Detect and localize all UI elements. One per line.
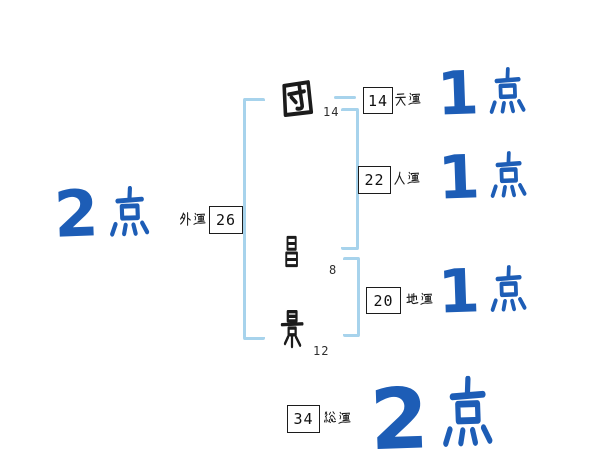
name-char-kei	[278, 310, 306, 352]
name-fortune-diagram: 14 8 12 14 22 20 26 34 1	[0, 0, 600, 470]
kanji-jin-icon	[393, 171, 406, 186]
souun-value-box: 34	[287, 405, 320, 433]
kanji-un-icon	[193, 212, 206, 227]
tenun-value-box: 14	[363, 87, 393, 114]
jinun-value: 22	[364, 171, 384, 189]
kanji-ten-icon	[394, 92, 407, 107]
bracket-chiun	[343, 257, 360, 337]
souun-score-digit: 2	[369, 386, 428, 453]
kanji-point-icon	[485, 66, 529, 117]
bracket-tenun-dash	[334, 96, 356, 99]
kanji-point-icon	[486, 150, 530, 201]
kanji-chi-icon	[406, 292, 419, 307]
kanji-un-icon	[420, 292, 433, 307]
chiun-value-box: 20	[366, 287, 401, 314]
tenun-value: 14	[368, 92, 388, 110]
souun-score: 2	[369, 384, 498, 455]
kanji-gai-icon	[179, 212, 192, 227]
kanji-point-icon	[486, 264, 530, 315]
name-char-sho	[281, 235, 302, 269]
tenun-score: 1	[436, 68, 528, 119]
stroke-count-dan: 14	[323, 105, 339, 119]
kanji-point-icon	[437, 375, 498, 453]
chiun-score: 1	[437, 266, 529, 317]
gaiun-score-digit: 2	[53, 190, 97, 241]
jinun-score-digit: 1	[437, 154, 478, 202]
kanji-un-icon	[408, 92, 421, 107]
gaiun-value-box: 26	[209, 206, 243, 234]
jinun-value-box: 22	[358, 166, 391, 194]
jinun-label	[393, 171, 420, 186]
souun-value: 34	[293, 410, 313, 428]
kanji-sou-icon	[324, 411, 337, 426]
gaiun-label	[179, 212, 206, 227]
stroke-count-sho: 8	[329, 263, 337, 277]
kanji-un-icon	[338, 411, 351, 426]
jinun-score: 1	[437, 152, 529, 203]
kanji-point-icon	[105, 185, 153, 241]
chiun-score-digit: 1	[437, 268, 478, 316]
bracket-gaiun	[243, 98, 265, 340]
kanji-un-icon	[407, 171, 420, 186]
bracket-jinun	[341, 108, 359, 250]
name-char-dan	[278, 78, 317, 120]
chiun-label	[406, 292, 433, 307]
tenun-label	[394, 92, 421, 107]
souun-label	[324, 411, 351, 426]
gaiun-value: 26	[216, 211, 236, 229]
chiun-value: 20	[373, 292, 393, 310]
tenun-score-digit: 1	[436, 70, 477, 118]
stroke-count-kei: 12	[313, 344, 329, 358]
gaiun-score: 2	[53, 188, 152, 242]
